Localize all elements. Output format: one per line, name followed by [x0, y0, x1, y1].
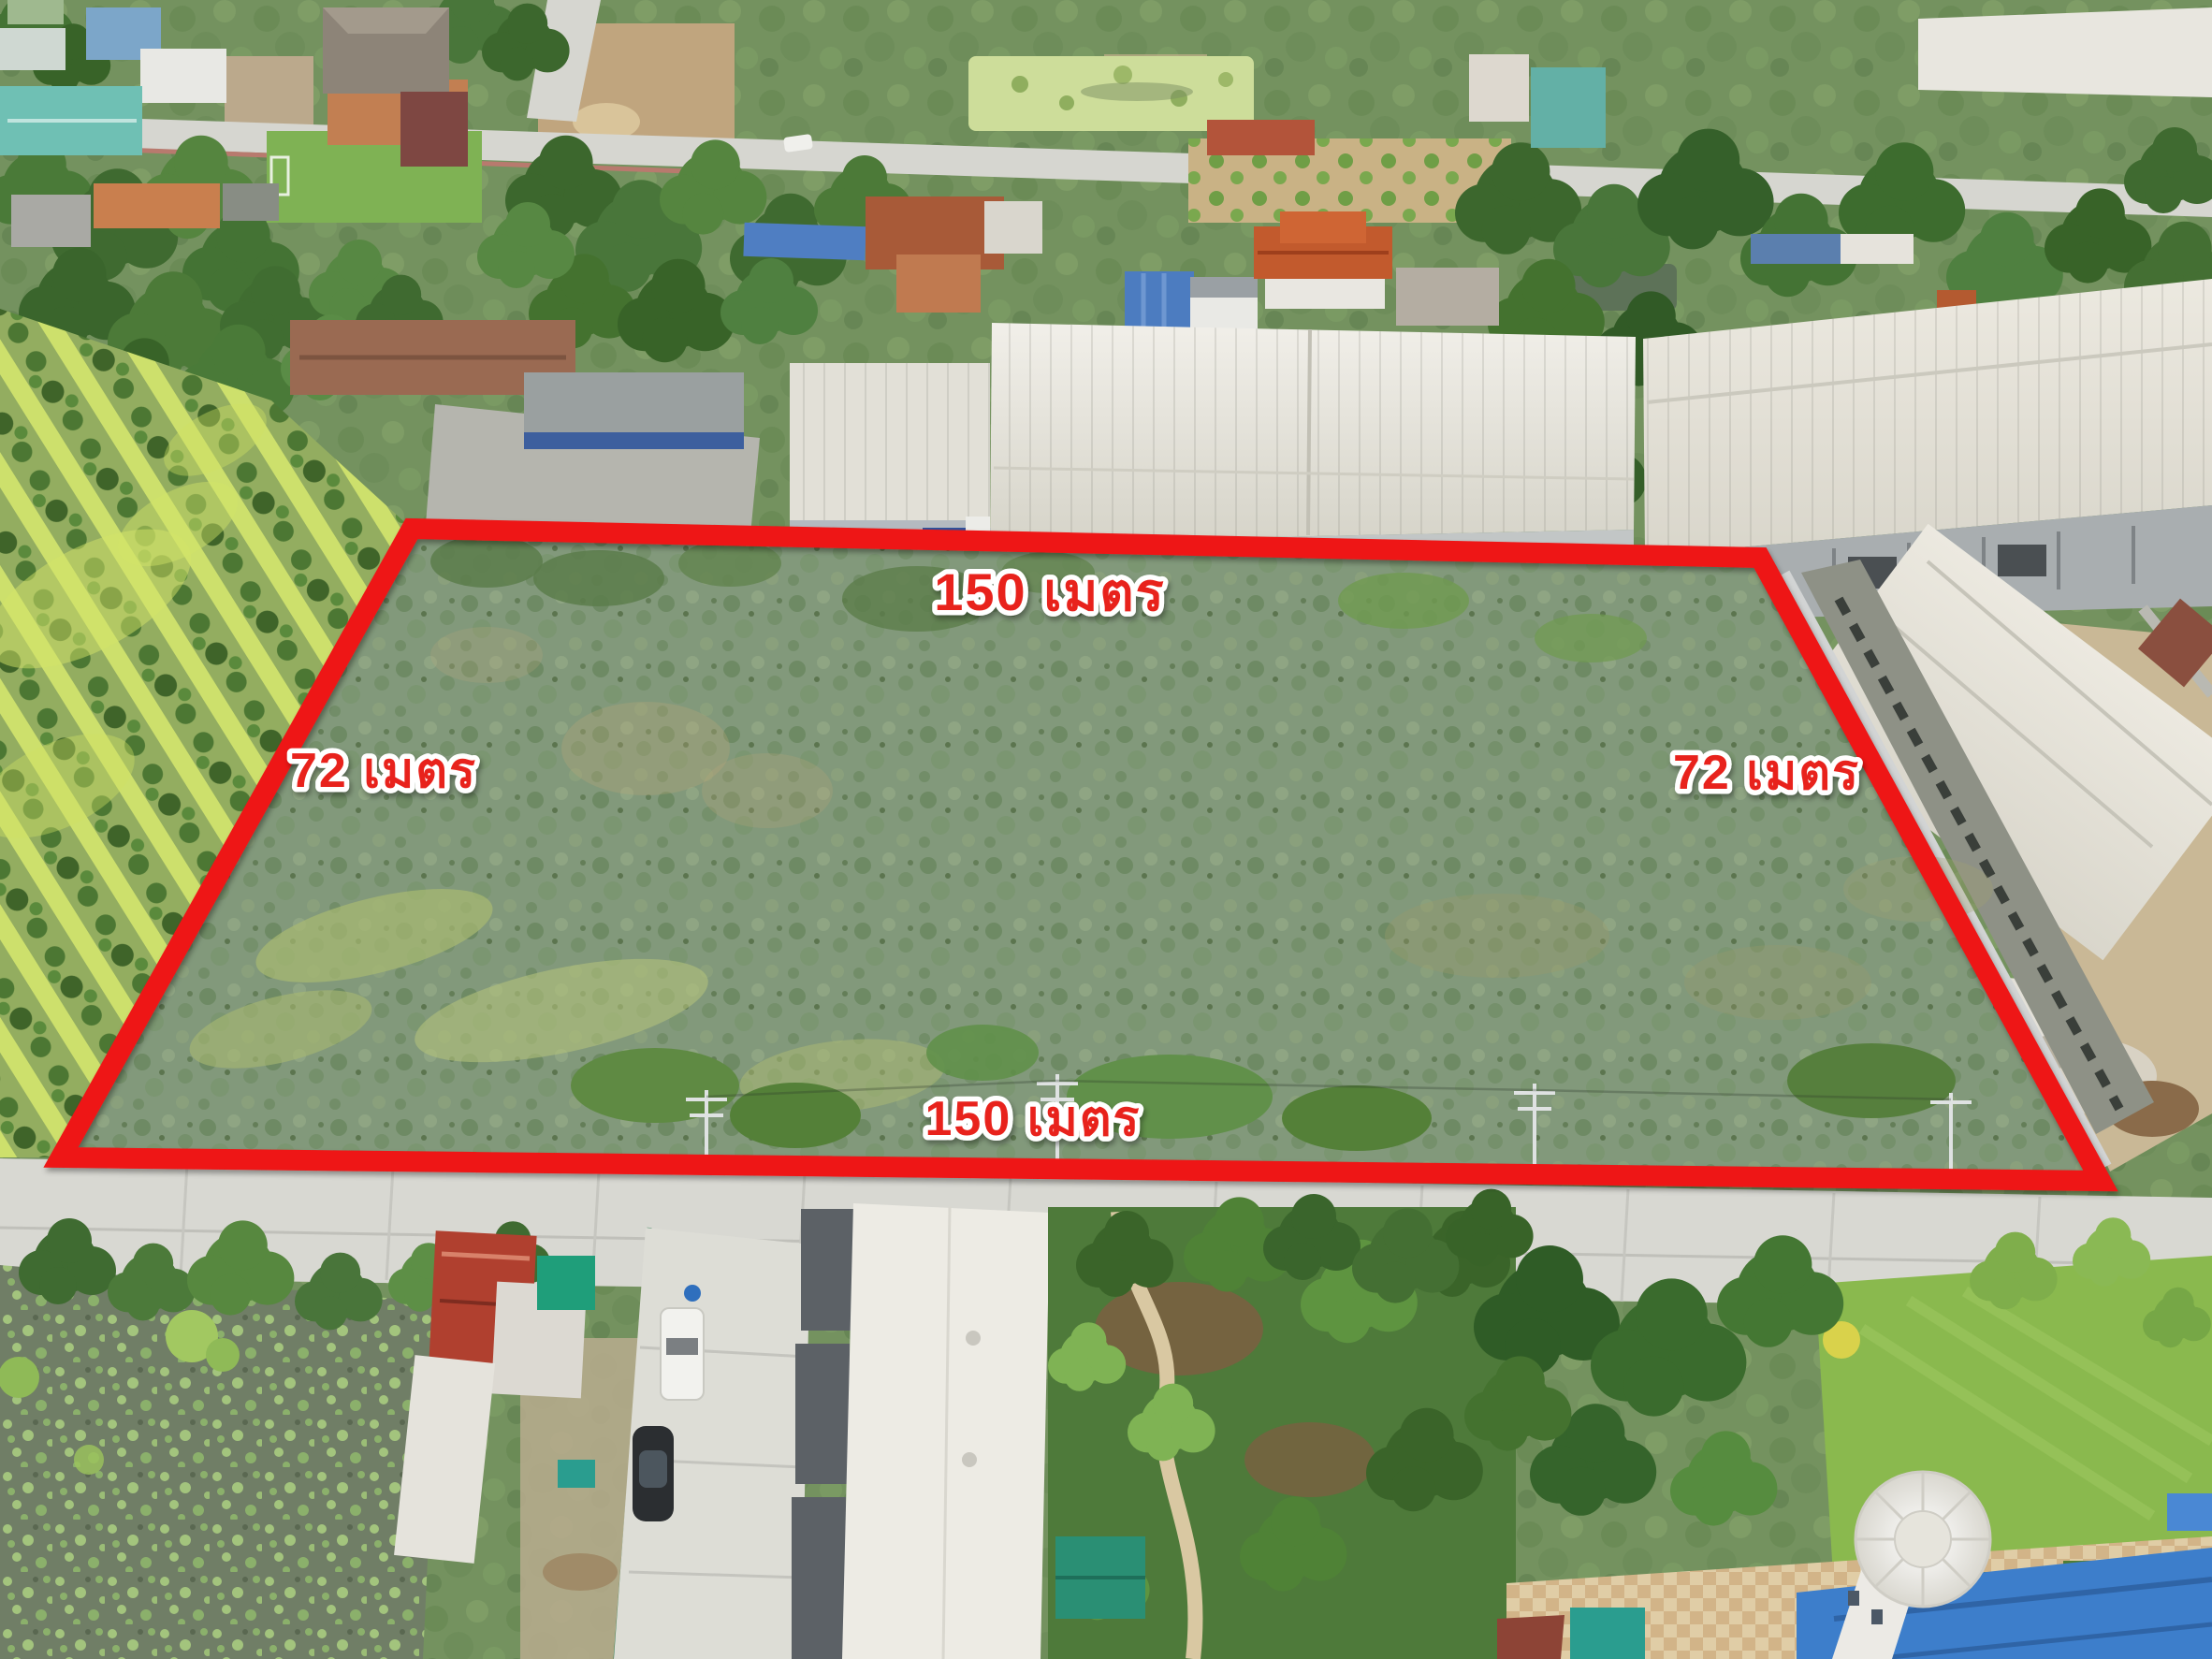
- aerial-photo: 150 เมตร 72 เมตร 72 เมตร 150 เมตร: [0, 0, 2212, 1659]
- rowhouse-building: [792, 1203, 1050, 1659]
- dimension-label-top: 150 เมตร: [934, 562, 1166, 621]
- black-car: [633, 1426, 674, 1521]
- dimension-label-right: 72 เมตร: [1673, 746, 1860, 800]
- driveway: [614, 1228, 810, 1659]
- dimension-label-bottom: 150 เมตร: [925, 1092, 1142, 1146]
- white-pickup-truck: [661, 1308, 704, 1400]
- thai-red-roof-corner: [1497, 1615, 1564, 1659]
- blue-barrel: [684, 1285, 701, 1302]
- aerial-photo-canvas: 150 เมตร 72 เมตร 72 เมตร 150 เมตร: [0, 0, 2212, 1659]
- dimension-label-left: 72 เมตร: [290, 744, 477, 798]
